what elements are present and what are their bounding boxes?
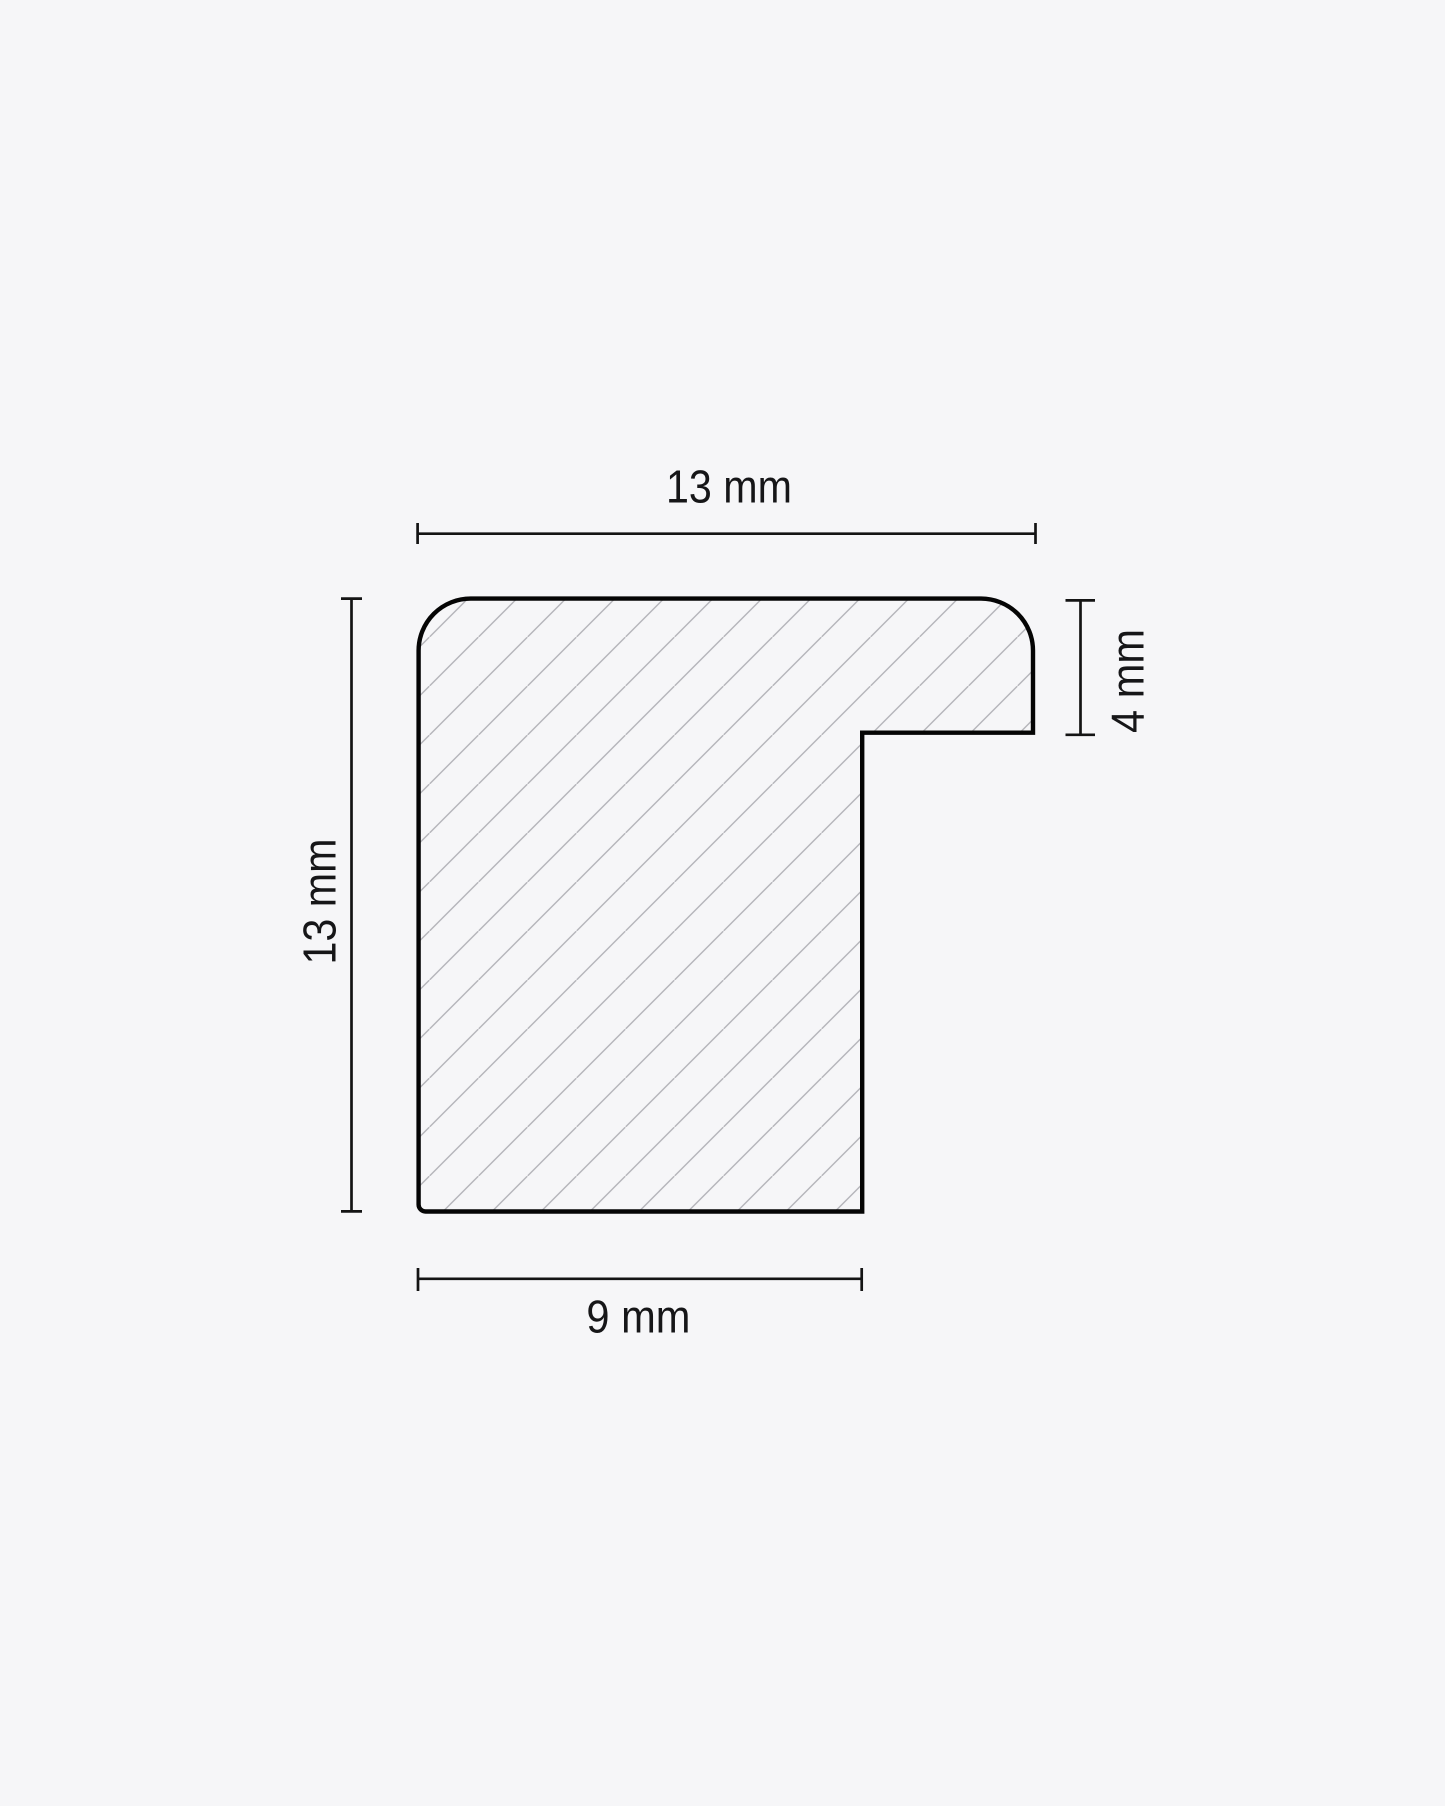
svg-text:4 mm: 4 mm [1102,629,1154,733]
svg-text:9 mm: 9 mm [586,1290,690,1342]
svg-text:13 mm: 13 mm [666,460,792,512]
svg-text:13 mm: 13 mm [293,839,345,965]
